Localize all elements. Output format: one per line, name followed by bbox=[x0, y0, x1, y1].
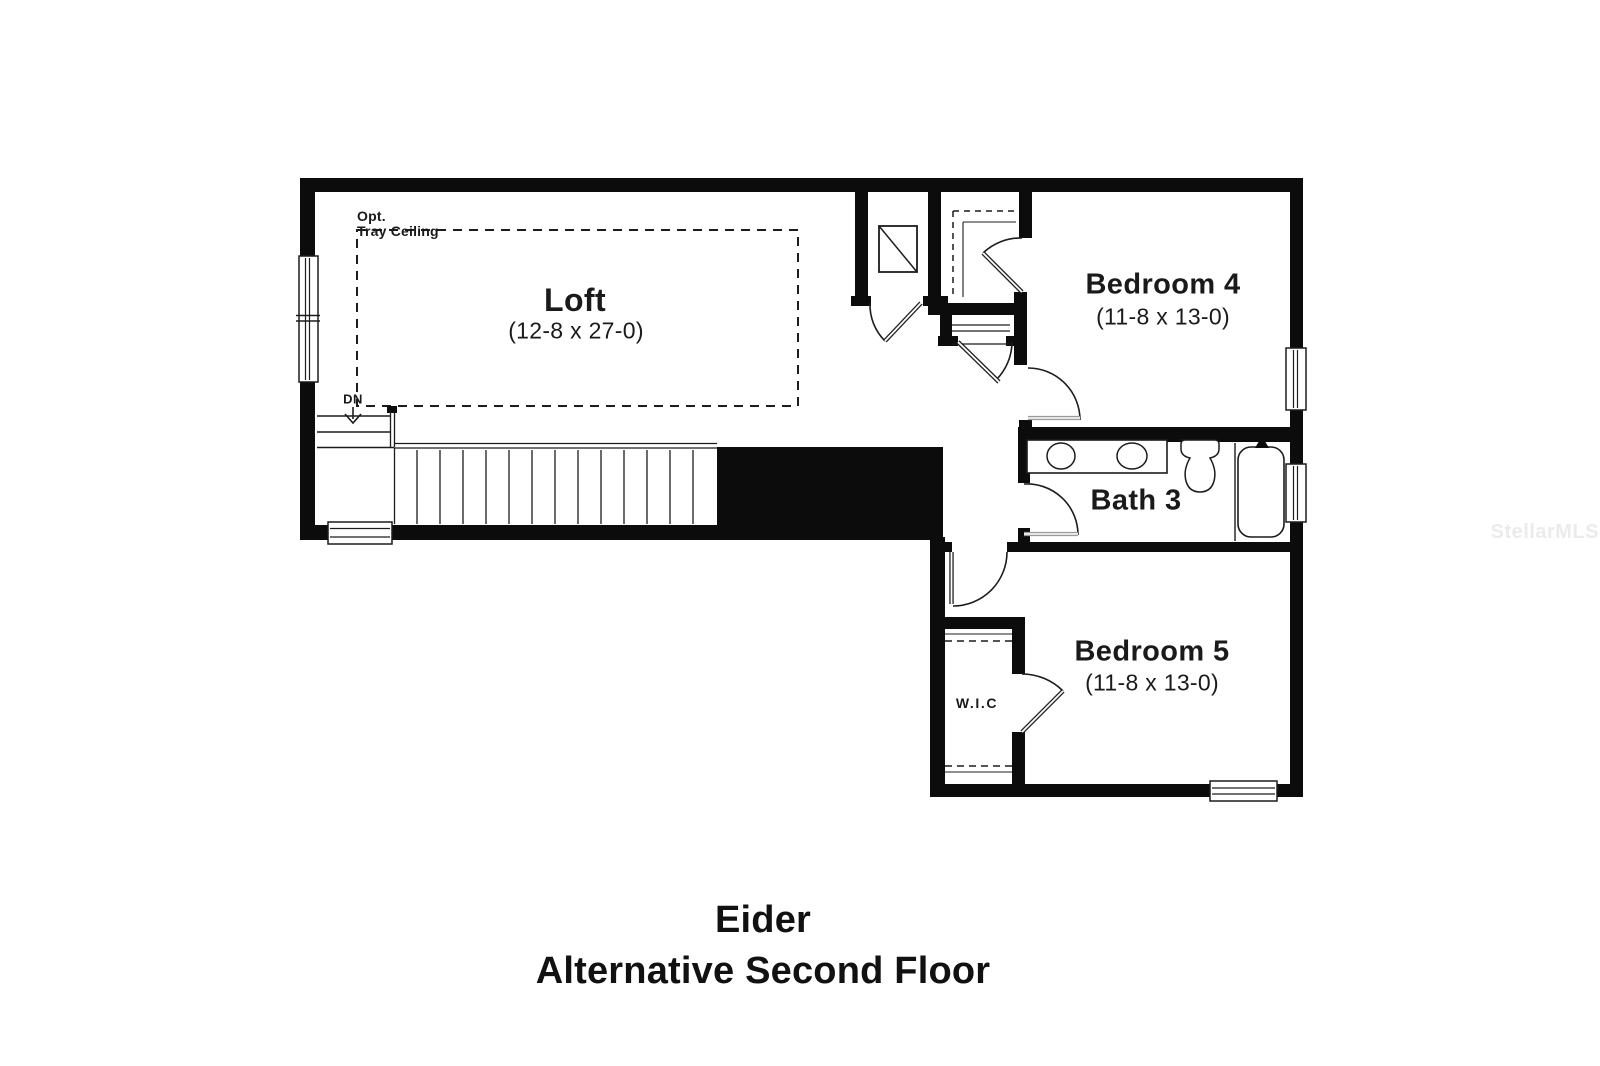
bedroom4-dims: (11-8 x 13-0) bbox=[1096, 306, 1230, 329]
bath3-door bbox=[1024, 484, 1078, 535]
window-bedroom4 bbox=[1286, 348, 1306, 410]
wic-door bbox=[1022, 674, 1063, 732]
stairs-down-label: DN bbox=[343, 393, 363, 406]
watermark: StellarMLS bbox=[1491, 521, 1599, 544]
floor-plan-page: Loft (12-8 x 27-0) Bedroom 4 (11-8 x 13-… bbox=[0, 0, 1600, 1066]
bedroom5-dims: (11-8 x 13-0) bbox=[1085, 672, 1219, 695]
sink-icon bbox=[1117, 443, 1147, 469]
wic-label: W.I.C bbox=[956, 696, 998, 710]
plan-title: Eider bbox=[715, 901, 811, 939]
vanity-icon bbox=[1027, 440, 1167, 473]
bedroom4-door bbox=[1028, 368, 1080, 420]
linen-shelf bbox=[952, 325, 1010, 344]
wall-top bbox=[300, 178, 1303, 192]
loft-label: Loft bbox=[544, 284, 606, 316]
bedroom5-label: Bedroom 5 bbox=[1074, 638, 1229, 667]
tray-ceiling-note-line2: Tray Ceiling bbox=[357, 224, 439, 239]
toilet-icon bbox=[1181, 440, 1219, 492]
laundry-door bbox=[870, 303, 921, 341]
laundry-appliance-icon bbox=[879, 226, 917, 272]
tray-ceiling-note: Opt. Tray Ceiling bbox=[357, 209, 439, 239]
bedroom4-label: Bedroom 4 bbox=[1085, 271, 1240, 300]
stairs bbox=[317, 406, 717, 524]
stair-treads bbox=[417, 450, 693, 524]
wall-rightwing-left bbox=[930, 537, 945, 787]
stairwell-mass bbox=[717, 447, 943, 540]
window-bedroom5 bbox=[1210, 781, 1277, 801]
plan-subtitle: Alternative Second Floor bbox=[536, 952, 991, 990]
window-left bbox=[296, 256, 320, 382]
bathtub-icon bbox=[1235, 436, 1284, 541]
window-bottom-left bbox=[328, 522, 392, 544]
sink-icon bbox=[1047, 443, 1075, 469]
stair-stringer bbox=[391, 411, 395, 447]
bath3-label: Bath 3 bbox=[1090, 487, 1181, 516]
stair-newel bbox=[387, 406, 397, 413]
tray-ceiling-note-line1: Opt. bbox=[357, 209, 439, 224]
bedroom5-door bbox=[952, 552, 1008, 606]
linen-door bbox=[958, 342, 1012, 382]
loft-dims: (12-8 x 27-0) bbox=[508, 320, 644, 343]
window-bath3 bbox=[1286, 464, 1306, 522]
dn-arrow-icon bbox=[345, 407, 361, 423]
bedroom4-closet-door bbox=[983, 238, 1022, 292]
